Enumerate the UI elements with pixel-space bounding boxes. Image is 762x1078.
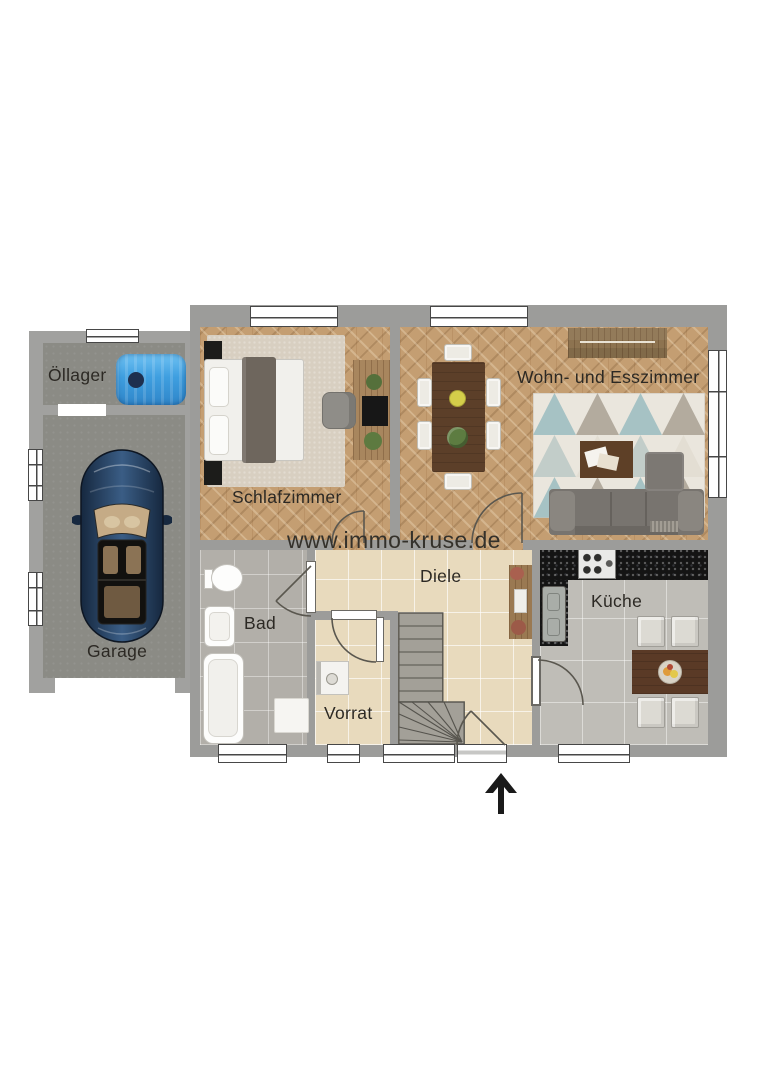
room-label-diele: Diele [420,566,461,587]
floor-plan: Öllager Garage Schlafzimmer Wohn- und Es… [0,0,762,1078]
room-label-oellager: Öllager [48,365,107,386]
watermark: www.immo-kruse.de [287,527,501,554]
north-arrow-icon [483,772,519,816]
room-label-bad: Bad [244,613,276,634]
room-label-schlafzimmer: Schlafzimmer [232,487,342,508]
room-label-wohn-esszimmer: Wohn- und Esszimmer [517,367,699,388]
room-label-vorrat: Vorrat [324,703,373,724]
room-label-garage: Garage [87,641,147,662]
room-label-kueche: Küche [591,591,642,612]
